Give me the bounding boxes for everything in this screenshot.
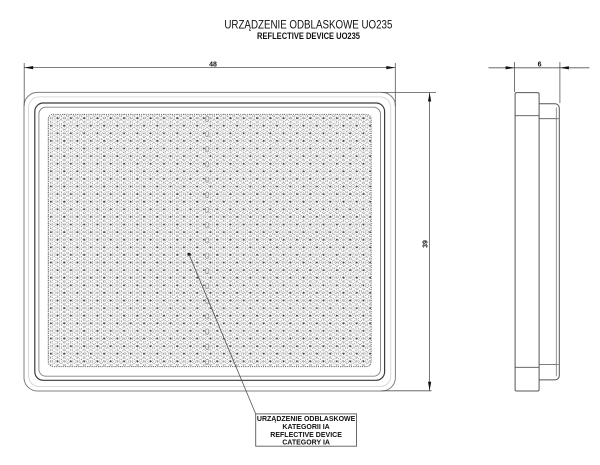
svg-text:KATEGORII IA: KATEGORII IA — [282, 424, 329, 431]
svg-text:6: 6 — [538, 62, 542, 69]
svg-text:URZĄDZENIE ODBLASKOWE: URZĄDZENIE ODBLASKOWE — [257, 416, 356, 423]
svg-text:CATEGORY IA: CATEGORY IA — [282, 440, 330, 447]
svg-text:URZĄDZENIE ODBLASKOWE UO235: URZĄDZENIE ODBLASKOWE UO235 — [224, 18, 392, 32]
svg-text:REFLECTIVE DEVICE UO235: REFLECTIVE DEVICE UO235 — [257, 31, 360, 41]
svg-text:39: 39 — [423, 240, 430, 248]
svg-text:REFLECTIVE DEVICE: REFLECTIVE DEVICE — [270, 432, 342, 439]
svg-text:48: 48 — [209, 62, 217, 69]
